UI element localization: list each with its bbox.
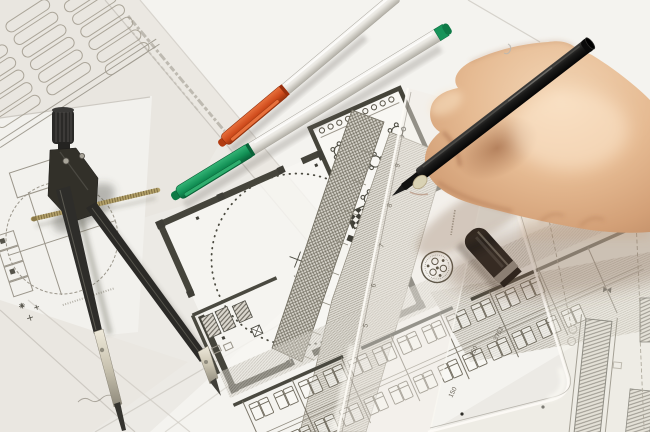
hand-highlight [512,90,628,170]
photo-canvas: 3752 150 150 9 8 7 6 5 [0,0,650,432]
photo-architect-desk: 3752 150 150 9 8 7 6 5 [0,0,650,432]
compass-knob [52,107,74,144]
